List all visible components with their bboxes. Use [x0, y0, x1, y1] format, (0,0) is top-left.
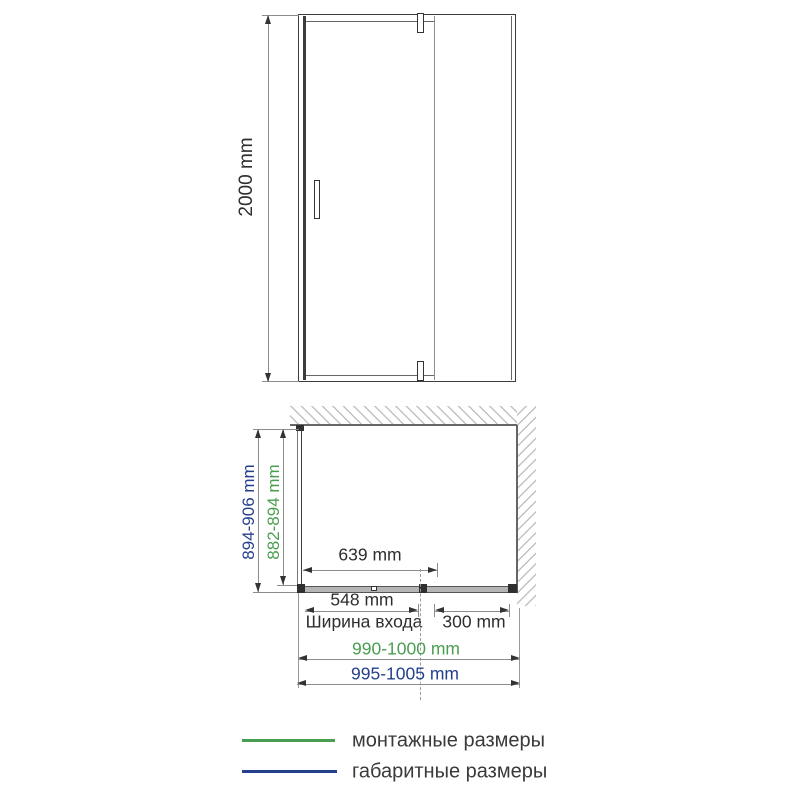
door-width-label: 639 mm — [338, 545, 401, 566]
width-ext-line-left — [298, 593, 299, 688]
overall-width-arrow-right — [511, 680, 520, 686]
wall-top-hatch — [290, 406, 517, 425]
side-panel-inner-line — [301, 425, 302, 586]
mounting-depth-label: 882-894 mm — [264, 464, 284, 559]
depth-dim-tick-top — [253, 429, 299, 430]
fixed-panel-label: 300 mm — [442, 611, 505, 632]
mounting-width-arrow-left — [298, 655, 307, 661]
width-ext-line-right — [519, 608, 520, 688]
depth-dim-tick-bottom-overall — [253, 592, 297, 593]
overall-depth-arrow-top — [255, 429, 261, 438]
overall-width-label: 995-1005 mm — [351, 664, 459, 685]
overall-depth-arrow-bottom — [255, 583, 261, 592]
legend-mounting-line-swatch — [242, 739, 335, 742]
height-dim-arrow-top — [265, 15, 271, 24]
door-bar-left-cap — [297, 584, 305, 594]
side-panel-wall-bracket — [296, 425, 304, 431]
door-width-arrow-left — [303, 567, 312, 573]
front-hinge-bottom — [417, 361, 424, 381]
front-panel-divider — [434, 16, 436, 380]
door-bar-right-cap — [508, 584, 518, 594]
depth-dim-tick-bottom-mounting — [277, 585, 297, 586]
overall-width-arrow-left — [297, 680, 306, 686]
legend-overall-label: габаритные размеры — [352, 761, 547, 784]
height-dim-label: 2000 mm — [236, 137, 258, 216]
legend-overall-line-swatch — [242, 770, 337, 773]
wall-right-hatch — [517, 406, 536, 606]
side-panel-outer-line — [297, 425, 298, 586]
front-outer-frame — [298, 14, 516, 382]
height-dim-arrow-bottom — [265, 373, 271, 382]
front-right-inner-edge — [511, 16, 512, 380]
door-width-dim-line — [303, 570, 437, 571]
legend-mounting-label: монтажные размеры — [352, 730, 545, 753]
front-hinge-top — [417, 13, 424, 33]
mounting-width-arrow-right — [511, 655, 520, 661]
mounting-width-label: 990-1000 mm — [352, 639, 460, 660]
mounting-depth-arrow-top — [280, 429, 286, 438]
front-door-handle — [314, 180, 320, 219]
front-left-profile — [303, 16, 306, 380]
entrance-width-label: 548 mm — [330, 590, 393, 611]
wall-right-face-line — [516, 425, 517, 592]
height-dim-line — [268, 15, 269, 382]
entrance-caption: Ширина входа — [306, 611, 423, 632]
front-door-top-edge — [306, 21, 434, 22]
wall-top-face-line — [290, 424, 517, 425]
front-door-bottom-edge — [306, 375, 434, 376]
door-width-arrow-right — [428, 567, 437, 573]
overall-depth-label: 894-906 mm — [239, 464, 259, 559]
technical-drawing-shower-door: 2000 mm 894-906 mm 882-894 mm — [0, 0, 800, 800]
